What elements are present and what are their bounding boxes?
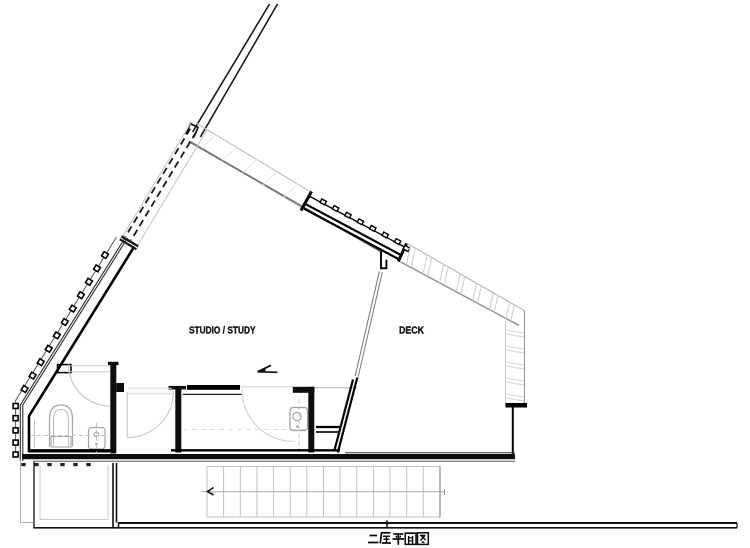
svg-text:DECK: DECK xyxy=(399,325,424,337)
svg-text:STUDIO / STUDY: STUDIO / STUDY xyxy=(189,324,256,336)
